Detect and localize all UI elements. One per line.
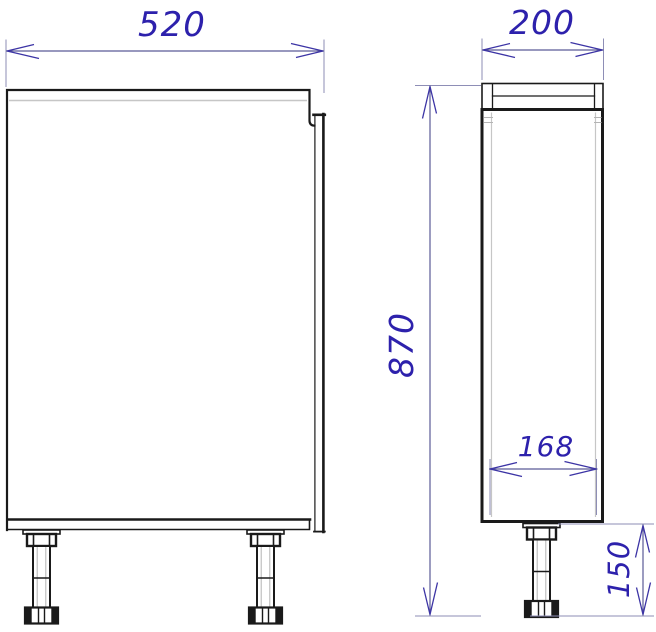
dimension-depth-200: 200 <box>482 3 604 80</box>
dimension-width-520: 520 <box>6 5 324 93</box>
dimension-label-leg-height: 150 <box>602 540 636 598</box>
side-view <box>482 84 603 618</box>
extension-lines-200 <box>482 39 604 81</box>
dimension-label-height: 870 <box>382 312 421 378</box>
adjustable-leg-side <box>523 524 560 618</box>
dimension-height-870: 870 <box>382 86 481 617</box>
extension-lines-520 <box>6 40 324 94</box>
front-bottom-rail <box>7 520 310 530</box>
technical-drawing: 520 200 870 168 150 <box>0 0 656 632</box>
extension-lines-870 <box>415 86 481 617</box>
drawing-canvas: 520 200 870 168 150 <box>0 0 656 632</box>
adjustable-leg-front-right <box>247 530 284 624</box>
dimension-label-depth: 200 <box>509 3 575 42</box>
front-side-panel-strip <box>314 114 325 532</box>
side-top-rail <box>482 84 603 110</box>
front-view <box>7 90 325 624</box>
adjustable-leg-front-left <box>23 530 60 624</box>
cabinet-front-outline <box>7 90 315 530</box>
dimension-label-width: 520 <box>138 5 206 45</box>
dimension-label-inner-depth: 168 <box>518 430 574 463</box>
